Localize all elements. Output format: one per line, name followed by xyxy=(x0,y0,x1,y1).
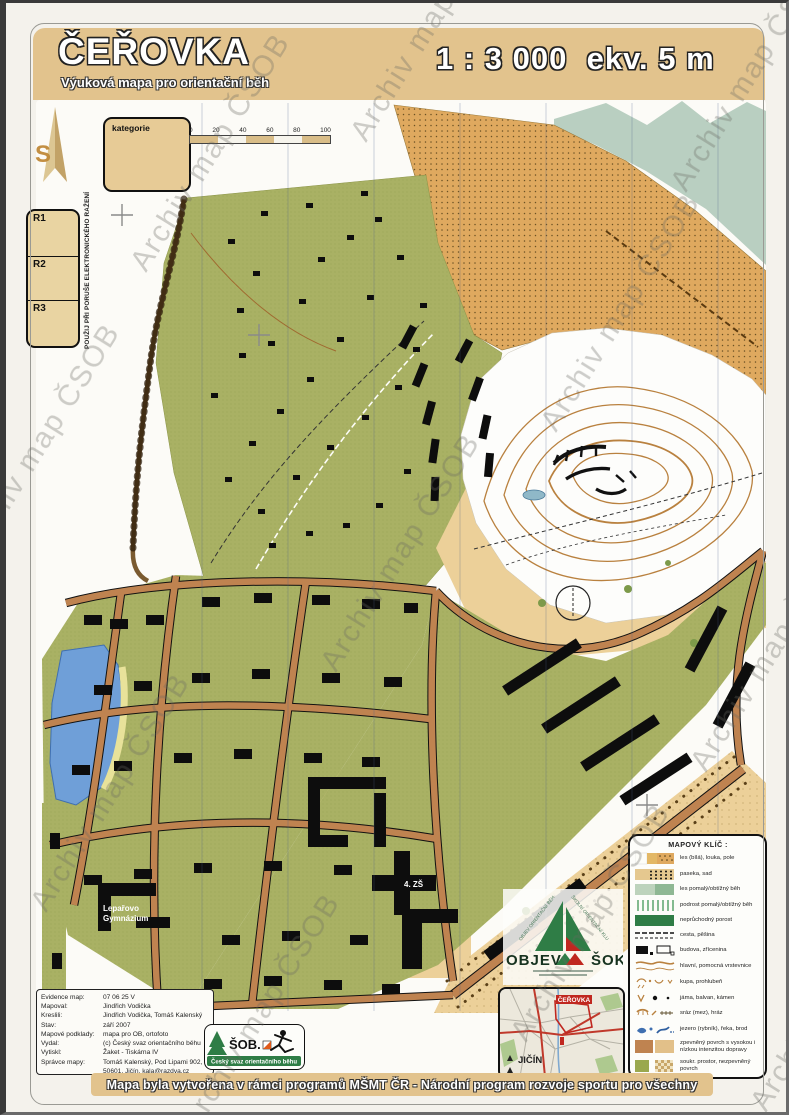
locator-inset-map: ČEŘOVKA JIČÍN xyxy=(498,987,625,1079)
imprint-value: (c) Český svaz orientačního běhu xyxy=(103,1039,209,1048)
legend-item: podrost pomalý/obtížný běh xyxy=(635,899,761,912)
legend-item: neprůchodný porost xyxy=(635,914,761,927)
footer-banner: Mapa byla vytvořena v rámci programů MŠM… xyxy=(91,1073,713,1096)
imprint-value: 07 06 25 V xyxy=(103,993,209,1002)
scale-tick: 60 xyxy=(266,127,273,134)
undergrowth-swatch xyxy=(635,899,675,912)
legend-item: les pomalý/obtížný běh xyxy=(635,883,761,896)
legend-item: budova, zřícenina xyxy=(635,944,761,957)
impassable-swatch xyxy=(635,914,675,927)
control-flag-icon xyxy=(263,1041,271,1049)
map-scale-text: 1 : 3 000 ekv. 5 m xyxy=(436,41,715,77)
imprint-label: Vytiskl: xyxy=(41,1048,103,1057)
imprint-label: Mapové podklady: xyxy=(41,1030,103,1039)
gymnazium-label-line1: Lepařovo xyxy=(103,904,139,913)
equidistance: ekv. 5 m xyxy=(587,41,715,76)
legend-title: MAPOVÝ KLÍČ : xyxy=(635,840,761,849)
sob-caption: Český svaz orientačního běhu xyxy=(211,1059,297,1066)
legend-item: les (bílá), louka, pole xyxy=(635,852,761,865)
kategorie-label: kategorie xyxy=(112,123,189,133)
pit-boulder-stone-swatch xyxy=(635,992,675,1004)
control-cell-r1[interactable]: R1 xyxy=(28,211,78,256)
punching-note: POUŽIJ PŘI PORUŠE ELEKTRONICKÉHO RAŽENÍ xyxy=(84,209,96,349)
imprint-label: Mapoval: xyxy=(41,1002,103,1011)
north-letter: S xyxy=(35,141,51,168)
legend-item: paseka, sad xyxy=(635,868,761,881)
scale-tick: 80 xyxy=(293,127,300,134)
control-cell-r3[interactable]: R3 xyxy=(28,300,78,345)
control-cell-r2[interactable]: R2 xyxy=(28,256,78,301)
imprint-label: Stav: xyxy=(41,1021,103,1030)
school-label: 4. ZŠ xyxy=(404,880,424,889)
imprint-label: Evidence map: xyxy=(41,993,103,1002)
knoll-depression-swatch xyxy=(635,976,675,990)
imprint-value: mapa pro OB, ortofoto xyxy=(103,1030,209,1039)
contours-swatch xyxy=(635,959,675,973)
pond xyxy=(523,490,545,500)
lake-river-ford-swatch xyxy=(635,1023,675,1037)
legend-panel: MAPOVÝ KLÍČ : les (bílá), louka, pole pa… xyxy=(628,834,767,1079)
scale-tick: 20 xyxy=(212,127,219,134)
inset-marker xyxy=(560,1037,564,1045)
imprint-value: Žaket - Tiskárna IV xyxy=(103,1048,209,1057)
objev-sok-logo: OBJEV ORIENTAČNÍ BĚH ŠKOLNÍ ORIENTAČNÍ K… xyxy=(503,889,623,985)
imprint-label: Kreslili: xyxy=(41,1011,103,1020)
imprint-value: Jindřich Vodička xyxy=(103,1002,209,1011)
paved-surface-swatch xyxy=(635,1039,675,1055)
objev-text: OBJEV xyxy=(506,952,562,969)
sok-text: ŠOK xyxy=(591,951,623,969)
scale-ratio: 1 : 3 000 xyxy=(436,41,567,76)
imprint-value: září 2007 xyxy=(103,1021,209,1030)
building-ruin-swatch xyxy=(635,944,675,957)
scale-tick: 0 xyxy=(189,127,193,134)
inset-area-label: ČEŘOVKA xyxy=(558,995,591,1004)
map-subtitle: Výuková mapa pro orientační běh xyxy=(61,75,269,90)
kategorie-box[interactable]: kategorie xyxy=(103,117,191,192)
footer-banner-text: Mapa byla vytvořena v rámci programů MŠM… xyxy=(107,1078,698,1092)
road-path-swatch xyxy=(635,930,675,941)
private-unpaved-swatch xyxy=(635,1058,675,1074)
imprint-value: Jindřich Vodička, Tomáš Kalenský xyxy=(103,1011,209,1020)
north-arrow: S xyxy=(34,106,78,202)
legend-item: jezero (rybník), řeka, brod xyxy=(635,1023,761,1037)
gymnazium-label-line2: Gymnázium xyxy=(103,914,148,923)
sob-text: ŠOB. xyxy=(229,1037,261,1052)
slow-forest-swatch xyxy=(635,883,675,896)
legend-item: hlavní, pomocná vrstevnice xyxy=(635,959,761,973)
runner-icon xyxy=(271,1030,293,1052)
imprint-label: Vydal: xyxy=(41,1039,103,1048)
inset-city-label: JIČÍN xyxy=(518,1054,542,1066)
control-card-column[interactable]: R1 R2 R3 xyxy=(26,209,80,348)
clearing-orchard-swatch xyxy=(635,868,675,881)
map-title: ČEŘOVKA xyxy=(58,31,250,73)
earthbank-dam-swatch xyxy=(635,1007,675,1020)
legend-item: zpevněný povrch s vysokou i nízkou inten… xyxy=(635,1039,761,1055)
scale-tick: 40 xyxy=(239,127,246,134)
map-sheet: Lepařovo Gymnázium 4. ZŠ ČEŘOVKA Výuková… xyxy=(0,0,789,1115)
scale-tick: 100 xyxy=(320,127,331,134)
legend-item: soukr. prostor, nezpevněný povrch xyxy=(635,1058,761,1074)
legend-item: sráz (mez), hráz xyxy=(635,1007,761,1020)
legend-item: jáma, balvan, kámen xyxy=(635,992,761,1004)
legend-item: cesta, pěšina xyxy=(635,930,761,941)
forest-meadow-field-swatch xyxy=(635,852,675,865)
scale-bar: 0 20 40 60 80 100 xyxy=(189,127,331,151)
legend-item: kupa, prohlubeň xyxy=(635,976,761,990)
scale-bar-segments xyxy=(189,135,331,144)
sob-federation-logo: ŠOB. Český svaz orientačního běhu xyxy=(204,1024,305,1070)
imprint-table: Evidence map:07 06 25 V Mapoval:Jindřich… xyxy=(36,989,214,1075)
